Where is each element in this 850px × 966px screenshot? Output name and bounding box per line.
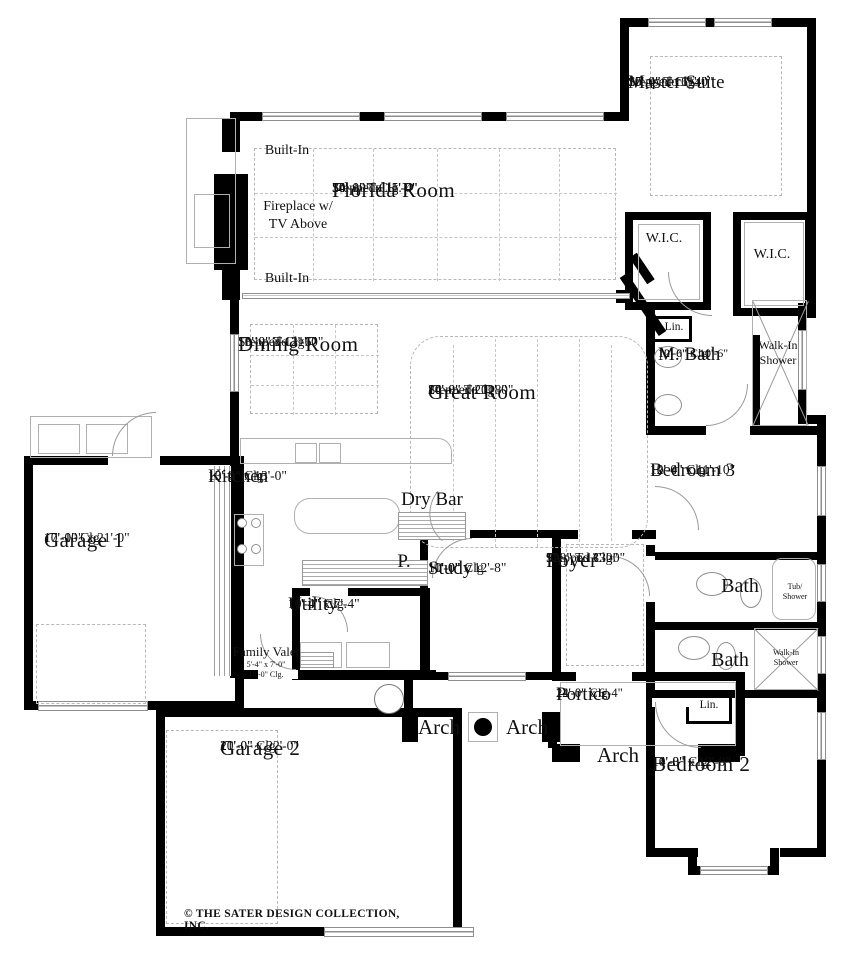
- wall: [646, 672, 745, 681]
- stove-burner: [251, 544, 261, 554]
- stove-burner: [237, 518, 247, 528]
- room-ceiling: Stepped Clg.: [332, 180, 402, 196]
- label-bath-upper: Bath: [704, 574, 776, 599]
- arch-column: [474, 718, 492, 736]
- door-arc: [706, 384, 748, 426]
- copyright-text: © THE SATER DESIGN COLLECTION, INC.: [184, 908, 404, 932]
- door-arc: [655, 486, 699, 530]
- room-name: Family Valet: [216, 644, 316, 660]
- label-tub-shower: Tub/ Shower: [776, 582, 814, 603]
- window: [817, 636, 826, 674]
- label-arch-left: Arch: [408, 714, 470, 740]
- dryer: [346, 642, 390, 668]
- mbath-sink: [654, 394, 682, 416]
- label-fireplace: Fireplace w/ TV Above: [248, 198, 348, 233]
- window: [262, 112, 360, 121]
- label-dry-bar: Dry Bar: [392, 488, 472, 512]
- kitchen-sink: [295, 443, 317, 463]
- label-walk-in-shower-bed2: Walk-In Shower: [758, 648, 814, 669]
- window: [714, 18, 772, 27]
- ceiling-line: [251, 385, 379, 386]
- room-ceiling: Stepped Clg.: [428, 382, 498, 398]
- label-pantry: P.: [386, 550, 422, 574]
- window: [817, 712, 826, 760]
- room-ceiling: Stepped Clg.: [238, 334, 308, 350]
- ceiling-line: [495, 339, 496, 547]
- window: [506, 112, 604, 121]
- window: [817, 564, 826, 602]
- ceiling-line: [499, 149, 500, 281]
- kitchen-counter: [240, 438, 452, 464]
- label-arch-portico: Arch: [570, 742, 666, 768]
- fireplace-box: [194, 194, 230, 248]
- garage1-parking-stall: [36, 624, 146, 704]
- room-ceiling: 10'-0" Clg.: [208, 468, 267, 484]
- room-label-family-valet: Family Valet 5'-4" x 7'-0" 10'-0" Clg.: [216, 644, 316, 681]
- ceiling-line: [437, 149, 438, 281]
- room-ceiling: 10'-0" Clg.: [216, 670, 316, 680]
- wall: [620, 18, 629, 118]
- room-dims: 5'-4" x 7'-0": [216, 660, 316, 670]
- ceiling-line: [559, 149, 560, 281]
- room-ceiling: 10'-0" Clg.: [658, 346, 710, 361]
- kitchen-island: [294, 498, 400, 534]
- wic-right-shelving: [744, 222, 804, 306]
- label-built-in-top: Built-In: [252, 142, 322, 160]
- stove-burner: [237, 544, 247, 554]
- label-bath-lower: Bath: [698, 648, 762, 673]
- room-ceiling: 14'-0" Clg.: [556, 686, 611, 701]
- stove-burner: [251, 518, 261, 528]
- label-walk-in-shower-master: Walk-In Shower: [750, 338, 806, 368]
- ceiling-line: [579, 339, 580, 547]
- room-ceiling: 10'-0" Clg.: [220, 738, 279, 754]
- room-ceiling: Stepped Clg.: [546, 550, 616, 566]
- wall: [780, 848, 826, 857]
- outdoor-counter-cabinet: [38, 424, 80, 454]
- label-linen-master: Lin.: [654, 320, 694, 334]
- window-row: [242, 293, 630, 299]
- ceiling-line: [255, 237, 617, 238]
- ceiling-line: [611, 345, 612, 541]
- ceiling-line: [373, 149, 374, 281]
- door-opening: [706, 426, 750, 435]
- room-ceiling: 10'-0" Clg.: [44, 530, 103, 546]
- room-ceiling: 10'-0" Clg.: [288, 596, 347, 612]
- room-ceiling: 10'-0" Clg.: [650, 462, 709, 478]
- room-ceiling: 10'-0" Clg.: [428, 560, 487, 576]
- label-wic-left: W.I.C.: [636, 230, 692, 248]
- ceiling-line: [537, 339, 538, 547]
- label-linen-bed2: Lin.: [688, 698, 730, 712]
- window: [448, 672, 526, 681]
- window: [817, 466, 826, 516]
- room-ceiling: Stepped Clg.: [628, 74, 698, 90]
- label-built-in-bottom: Built-In: [252, 270, 322, 288]
- floor-plan-canvas: Master Suite 15'-4" x 16'-4" 10'-0" To 1…: [0, 0, 850, 966]
- kitchen-sink: [319, 443, 341, 463]
- window: [700, 866, 768, 875]
- label-wic-right: W.I.C.: [742, 246, 802, 264]
- window: [384, 112, 482, 121]
- window: [648, 18, 706, 27]
- entry-column: [374, 684, 404, 714]
- label-arch-right: Arch: [496, 714, 558, 740]
